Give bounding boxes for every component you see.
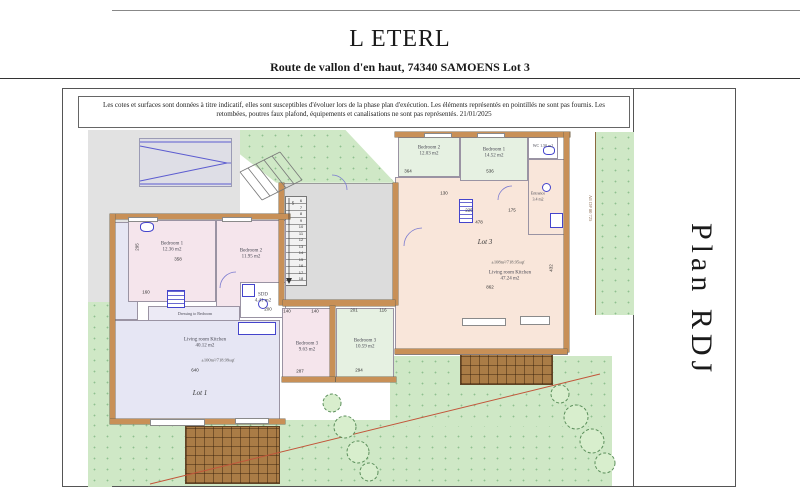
- dimension: 536: [486, 169, 494, 174]
- dimension: 201: [350, 308, 358, 313]
- dimension: 640: [191, 368, 199, 373]
- dimension: 140: [311, 309, 319, 314]
- dimension: 160: [142, 290, 150, 295]
- sheet-top-rule: [112, 10, 800, 11]
- plan-sheet: L ETERL Route de vallon d'en haut, 74340…: [0, 0, 800, 496]
- label-lot3-wc: WC 1.50 m2: [533, 143, 554, 149]
- window: [128, 217, 158, 222]
- label-lot1-bedroom1: Bedroom 112.36 m2: [161, 242, 183, 255]
- stair-step-numbers: 6 7 8 9 10 11 12 13 14 15 16 17 18: [296, 198, 306, 283]
- boundary-marker-text: AE DP 80 725: [588, 195, 593, 247]
- label-lot3-bedroom2: Bedroom 212.03 m2: [418, 146, 440, 159]
- label-lot1-areanote: ±100m²/718.99sqf: [201, 358, 234, 363]
- window: [520, 316, 550, 325]
- label-lot1: Lot 1: [193, 389, 208, 397]
- wall: [336, 377, 396, 382]
- window: [235, 418, 269, 424]
- grass-right-strip: [595, 132, 634, 315]
- internal-stair-lot1: [167, 290, 185, 308]
- dimension: 432: [549, 264, 554, 272]
- label-lot3-bedroom1: Bedroom 114.52 m2: [483, 148, 505, 161]
- wall: [330, 306, 335, 382]
- dimension: 287: [296, 369, 304, 374]
- dimension: 862: [486, 285, 494, 290]
- window: [222, 217, 252, 222]
- ramp-area: [139, 138, 232, 187]
- window: [150, 419, 205, 426]
- page-title: L ETERL: [0, 26, 800, 53]
- wall: [283, 300, 395, 306]
- grass-bottom-band: [88, 420, 612, 486]
- dimension: 200: [264, 307, 272, 312]
- label-lot3-living: Living room Kitchen47.24 m2: [489, 271, 531, 284]
- label-lot1-dressing: Dressing to Bedroom: [178, 311, 212, 317]
- terrace-lot1: [185, 426, 280, 484]
- wall: [279, 183, 284, 305]
- dimension: 478: [475, 220, 483, 225]
- window: [424, 133, 452, 138]
- dimension: 364: [404, 169, 412, 174]
- double-sink-icon: [238, 322, 276, 335]
- label-lot3-entrance: Entrance3.4 m2: [531, 191, 545, 204]
- dimension: 116: [379, 308, 386, 313]
- plan-title: Plan RDJ: [658, 185, 718, 415]
- dimension: 294: [355, 368, 363, 373]
- wall: [393, 183, 398, 305]
- disclaimer-note: Les cotes et surfaces sont données à tit…: [78, 96, 630, 128]
- page-subtitle: Route de vallon d'en haut, 74340 SAMOENS…: [0, 60, 800, 75]
- toilet-icon: [140, 222, 154, 232]
- dimension: 295: [135, 243, 140, 251]
- wall: [564, 132, 569, 352]
- label-lot1-sdd: SDD4.41 m2: [255, 293, 271, 306]
- window: [462, 318, 506, 326]
- shower-icon: [242, 284, 255, 297]
- label-lot3: Lot 3: [478, 238, 493, 246]
- dimension: 130: [440, 191, 448, 196]
- dimension: 225: [465, 208, 473, 213]
- label-lot1-living: Living room Kitchen40.12 m2: [184, 338, 226, 351]
- shower-icon: [550, 213, 563, 228]
- window: [477, 133, 505, 138]
- wall: [282, 377, 335, 382]
- label-lot1-bedroom3: Bedroom 39.63 m2: [296, 342, 318, 355]
- dimension: 140: [283, 309, 291, 314]
- label-lot1-bedroom2: Bedroom 211.95 m2: [240, 249, 262, 262]
- header-divider: [0, 78, 800, 79]
- label-lot3-bedroom3: Bedroom 310.59 m2: [354, 339, 376, 352]
- dimension: 5: [292, 201, 295, 206]
- dimension: 358: [174, 257, 182, 262]
- wall: [110, 214, 115, 424]
- wall: [395, 349, 567, 354]
- label-lot3-areanote: ±108m²/718.95sqf: [491, 260, 524, 265]
- dimension: 175: [508, 208, 516, 213]
